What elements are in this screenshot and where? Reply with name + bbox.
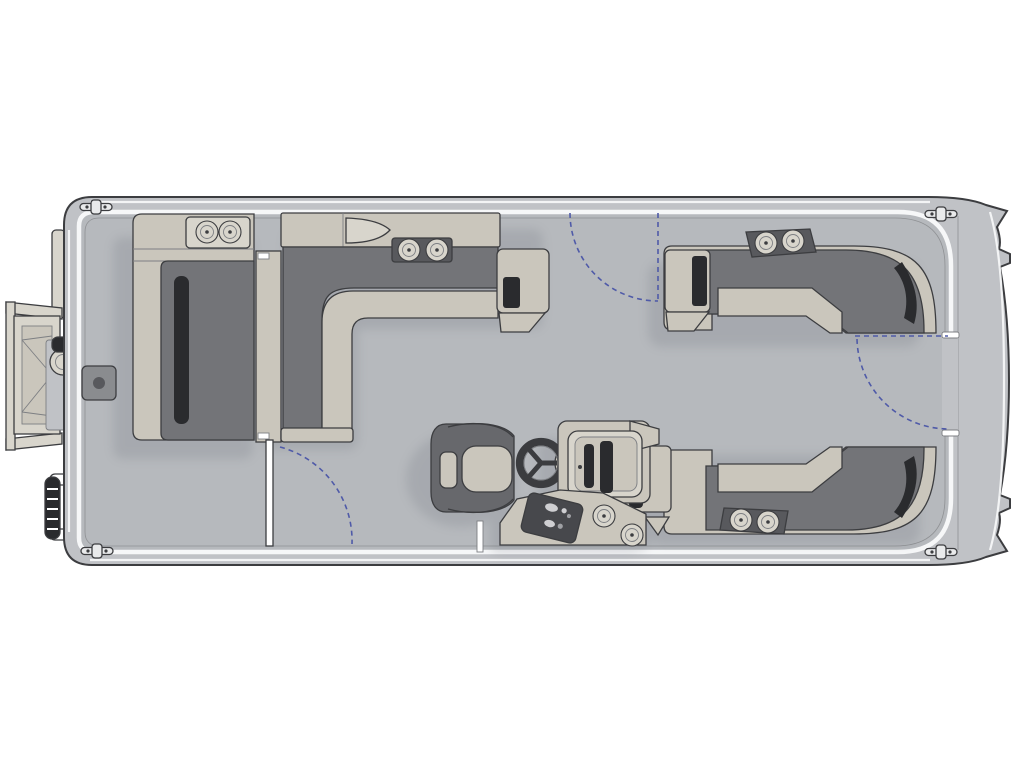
rail-post: [477, 521, 483, 552]
stern-gate-post-bottom: [942, 430, 959, 436]
table-base: [82, 366, 116, 400]
stern-gate-post-top: [942, 332, 959, 338]
divider-hinge-bottom: [258, 433, 269, 439]
captain-chair: [431, 424, 514, 513]
seat-divider: [256, 251, 281, 442]
dashboard-gauge-right: [600, 441, 613, 493]
floorplan-drawing: [0, 0, 1024, 768]
dashboard-knob: [578, 465, 582, 469]
bow-lounge: [133, 214, 254, 440]
bow-gate-panel: [266, 440, 273, 546]
pontoon-floorplan-page: [0, 0, 1024, 768]
stern-gate-opening: [942, 338, 958, 430]
chair-seat-insert: [462, 446, 512, 492]
ss-bench-armrest-panel: [692, 256, 707, 306]
bow-lounge-cushion-shadow: [174, 276, 189, 424]
dashboard-gauge-left: [584, 444, 594, 488]
chair-back-insert: [440, 452, 457, 488]
divider-hinge-top: [258, 253, 269, 259]
forward-bench-end-cap: [281, 428, 353, 442]
forward-bench-armrest-panel: [503, 277, 520, 308]
